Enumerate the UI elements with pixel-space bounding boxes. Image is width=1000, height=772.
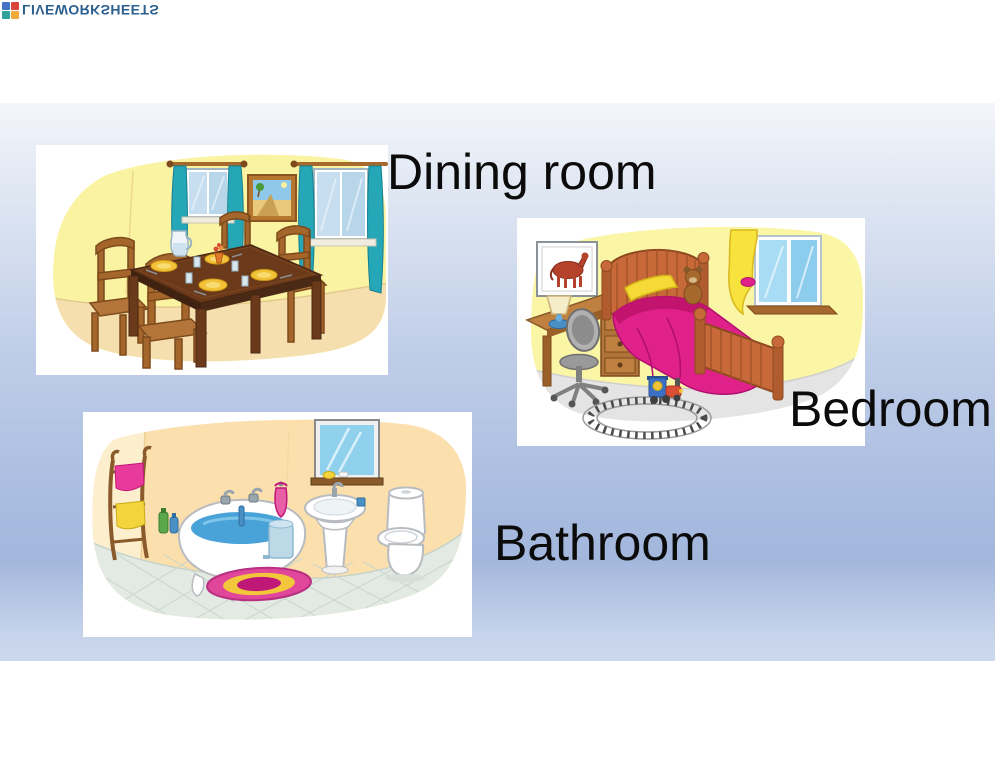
label-dining-room[interactable]: Dining room bbox=[387, 146, 657, 199]
horse-picture-frame bbox=[537, 242, 597, 296]
bathroom-illustration bbox=[83, 412, 472, 637]
watermark-text: LIVEWORKSHEETS bbox=[22, 3, 159, 19]
liveworksheets-logo-icon bbox=[2, 2, 19, 19]
bathroom-image-card bbox=[83, 412, 472, 637]
mirror-shelf bbox=[311, 478, 383, 485]
pink-towel bbox=[115, 463, 144, 491]
mirror bbox=[311, 420, 383, 485]
liveworksheets-watermark: LIVEWORKSHEETS bbox=[2, 1, 159, 20]
beach-picture-frame bbox=[248, 175, 296, 221]
dining-room-illustration bbox=[36, 145, 388, 375]
worksheet-page: { "watermark": { "text": "LIVEWORKSHEETS… bbox=[0, 0, 1000, 772]
yellow-towel bbox=[116, 501, 145, 529]
dining-room-image-card bbox=[36, 145, 388, 375]
label-bedroom[interactable]: Bedroom bbox=[789, 383, 992, 436]
label-bathroom[interactable]: Bathroom bbox=[494, 517, 711, 570]
